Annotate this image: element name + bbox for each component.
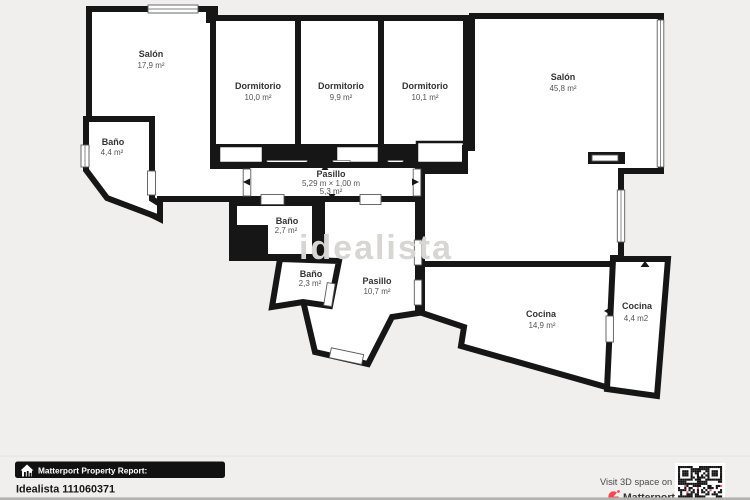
- footer-divider: [0, 456, 750, 457]
- room-label-dorm-3: Dormitorio: [402, 81, 449, 91]
- room-area-cocina-44: 4,4 m2: [624, 314, 649, 323]
- door-icon: [414, 280, 421, 305]
- room-label-dorm-1: Dormitorio: [235, 81, 282, 91]
- closet-3: [417, 142, 464, 163]
- room-area-cocina-149: 14,9 m²: [528, 321, 555, 330]
- visit-3d-text: Visit 3D space on: [600, 477, 672, 487]
- room-cocina-44: [607, 259, 668, 396]
- floorplan-report-image: idealista Salón 17,9 m² Dormitorio 10,0 …: [0, 0, 750, 500]
- room-label-bano-23: Baño: [300, 269, 323, 279]
- room-area-dorm-1: 10,0 m²: [244, 93, 271, 102]
- report-badge-label: Matterport Property Report:: [38, 466, 147, 476]
- room-area-salon-left: 17,9 m²: [137, 61, 164, 70]
- room-label-salon-right: Salón: [551, 72, 576, 82]
- room-area-pasillo-main: 5,3 m²: [320, 187, 343, 196]
- room-area-bano-23: 2,3 m²: [299, 279, 322, 288]
- idealista-watermark: idealista: [299, 229, 453, 267]
- door-icon: [360, 195, 381, 205]
- room-area-salon-right: 45,8 m²: [549, 84, 576, 93]
- room-label-pasillo-main: Pasillo: [316, 169, 346, 179]
- room-area-dorm-2: 9,9 m²: [330, 93, 353, 102]
- door-icon: [148, 171, 156, 195]
- room-label-cocina-149: Cocina: [526, 309, 557, 319]
- room-label-bano-44: Baño: [102, 137, 125, 147]
- closet-1: [219, 146, 263, 163]
- room-label-pasillo-107: Pasillo: [362, 276, 392, 286]
- room-area-bano-44: 4,4 m²: [101, 148, 124, 157]
- door-icon: [261, 195, 284, 205]
- room-label-salon-left: Salón: [139, 49, 164, 59]
- room-label-cocina-44: Cocina: [622, 301, 653, 311]
- floorplan-canvas: idealista Salón 17,9 m² Dormitorio 10,0 …: [0, 0, 750, 500]
- room-area-bano-27: 2,7 m²: [275, 226, 298, 235]
- room-area-pasillo-107: 10,7 m²: [363, 287, 390, 296]
- window-icon: [592, 155, 618, 161]
- room-label-bano-27: Baño: [276, 216, 299, 226]
- room-area-dorm-3: 10,1 m²: [411, 93, 438, 102]
- property-id: Idealista 111060371: [16, 484, 115, 496]
- room-label-dorm-2: Dormitorio: [318, 81, 365, 91]
- window-icon: [606, 316, 613, 342]
